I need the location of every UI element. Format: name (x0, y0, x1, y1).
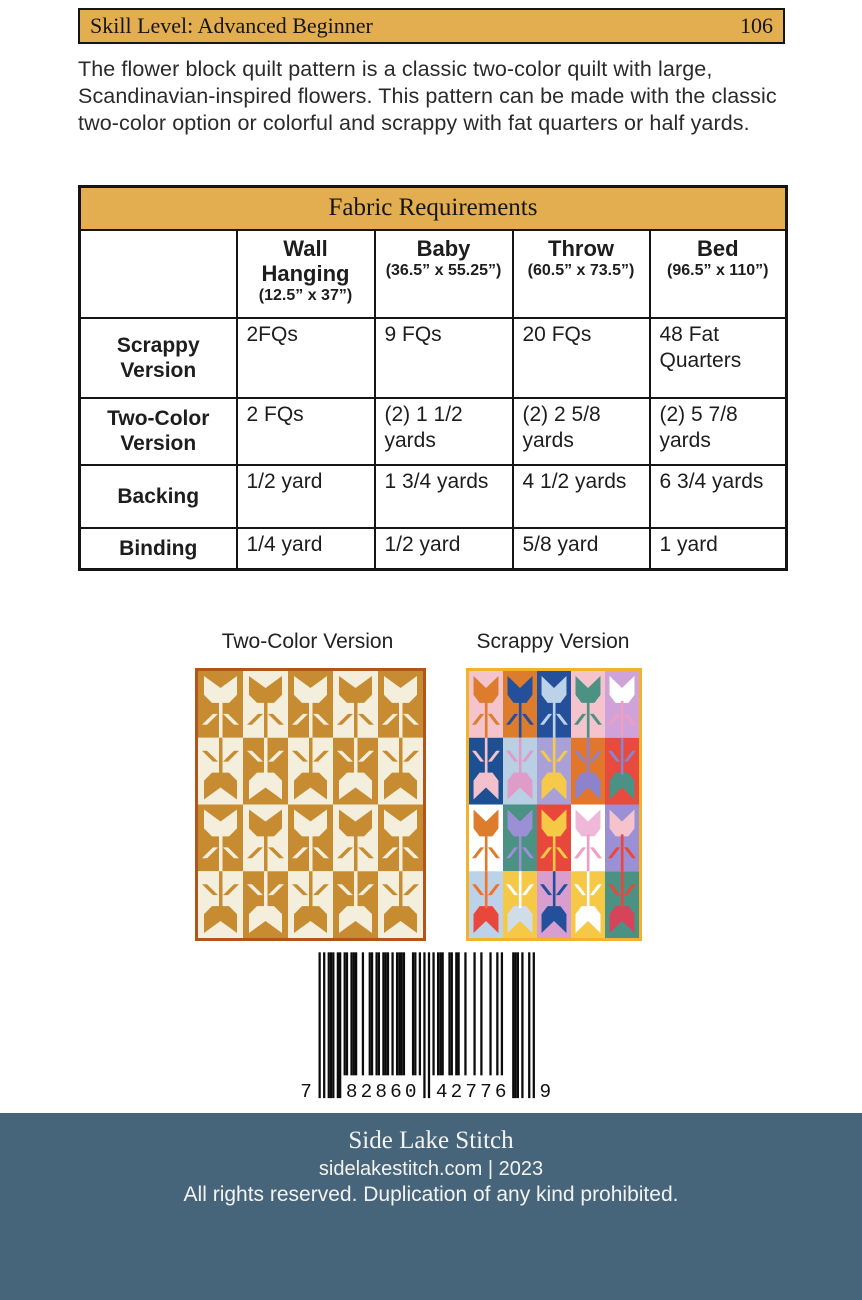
table-cell: (2) 2 5/8 yards (513, 398, 650, 465)
column-name: Wall Hanging (239, 236, 373, 286)
table-cell: (2) 5 7/8 yards (650, 398, 787, 465)
table-cell: 20 FQs (513, 318, 650, 398)
column-header: Throw(60.5” x 73.5”) (513, 230, 650, 318)
footer-website-year: sidelakestitch.com | 2023 (0, 1156, 862, 1182)
scrappy-quilt-image (466, 668, 642, 941)
column-name: Bed (652, 236, 785, 261)
column-name: Throw (515, 236, 648, 261)
svg-text:7: 7 (300, 1081, 312, 1103)
row-label: Backing (80, 465, 237, 528)
table-cell: 5/8 yard (513, 528, 650, 570)
table-cell: 2 FQs (237, 398, 375, 465)
two-color-version-label: Two-Color Version (195, 630, 420, 654)
column-name: Baby (377, 236, 511, 261)
column-size: (96.5” x 110”) (652, 261, 785, 280)
table-row: Backing1/2 yard1 3/4 yards4 1/2 yards6 3… (80, 465, 787, 528)
table-cell: 1/4 yard (237, 528, 375, 570)
table-cell: 1/2 yard (237, 465, 375, 528)
column-header: Wall Hanging(12.5” x 37”) (237, 230, 375, 318)
svg-text:82860: 82860 (346, 1081, 417, 1103)
table-cell: 4 1/2 yards (513, 465, 650, 528)
footer-rights-text: All rights reserved. Duplication of any … (0, 1182, 862, 1208)
column-header: Baby(36.5” x 55.25”) (375, 230, 513, 318)
pattern-description: The flower block quilt pattern is a clas… (78, 56, 784, 137)
footer-band: Side Lake Stitch sidelakestitch.com | 20… (0, 1113, 862, 1300)
column-size: (12.5” x 37”) (239, 286, 373, 305)
table-cell: 6 3/4 yards (650, 465, 787, 528)
fabric-table-body: Fabric RequirementsWall Hanging(12.5” x … (80, 187, 787, 570)
footer-company-name: Side Lake Stitch (0, 1126, 862, 1156)
table-row: Scrappy Version2FQs9 FQs20 FQs48 Fat Qua… (80, 318, 787, 398)
fabric-table: Fabric RequirementsWall Hanging(12.5” x … (78, 185, 788, 571)
barcode-image: 782860427769 (298, 952, 560, 1103)
skill-level-label: Skill Level: Advanced Beginner (90, 13, 373, 39)
page-number: 106 (740, 13, 773, 39)
table-cell: 1 yard (650, 528, 787, 570)
svg-text:42776: 42776 (436, 1081, 507, 1103)
column-size: (60.5” x 73.5”) (515, 261, 648, 280)
column-size: (36.5” x 55.25”) (377, 261, 511, 280)
table-cell: (2) 1 1/2 yards (375, 398, 513, 465)
table-cell: 1/2 yard (375, 528, 513, 570)
row-label: Binding (80, 528, 237, 570)
pattern-back-page: Skill Level: Advanced Beginner 106 The f… (0, 0, 862, 1300)
table-cell: 1 3/4 yards (375, 465, 513, 528)
skill-level-bar: Skill Level: Advanced Beginner 106 (78, 8, 785, 44)
fabric-table-title: Fabric Requirements (80, 187, 787, 230)
svg-text:9: 9 (539, 1081, 551, 1103)
two-color-quilt-image (195, 668, 426, 941)
table-row: Two-Color Version2 FQs(2) 1 1/2 yards(2)… (80, 398, 787, 465)
table-cell: 48 Fat Quarters (650, 318, 787, 398)
column-header: Bed(96.5” x 110”) (650, 230, 787, 318)
table-cell: 2FQs (237, 318, 375, 398)
table-cell: 9 FQs (375, 318, 513, 398)
table-corner-cell (80, 230, 237, 318)
scrappy-version-label: Scrappy Version (458, 630, 648, 654)
row-label: Scrappy Version (80, 318, 237, 398)
row-label: Two-Color Version (80, 398, 237, 465)
table-row: Binding1/4 yard1/2 yard5/8 yard1 yard (80, 528, 787, 570)
